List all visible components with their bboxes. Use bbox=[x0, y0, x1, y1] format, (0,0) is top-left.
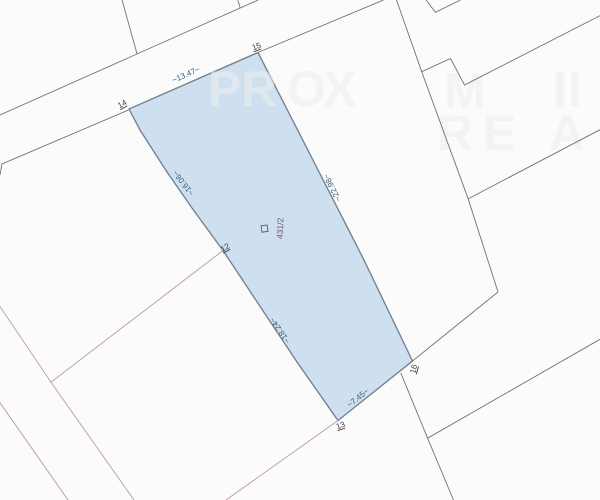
svg-text:R: R bbox=[241, 61, 277, 117]
svg-text:A: A bbox=[549, 105, 585, 161]
svg-text:P: P bbox=[208, 61, 241, 117]
svg-text:R: R bbox=[437, 105, 473, 161]
svg-text:O: O bbox=[287, 61, 326, 117]
svg-text:431/2: 431/2 bbox=[275, 217, 286, 239]
svg-text:E: E bbox=[483, 105, 516, 161]
svg-text:X: X bbox=[323, 61, 356, 117]
